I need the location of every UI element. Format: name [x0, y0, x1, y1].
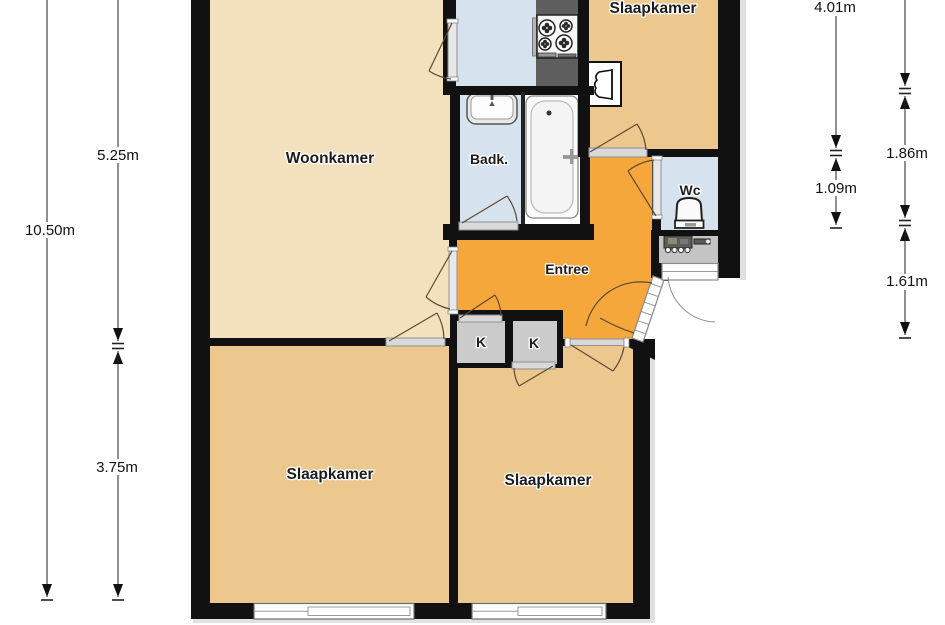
svg-text:4.01m: 4.01m: [814, 0, 856, 16]
svg-text:10.50m: 10.50m: [25, 222, 75, 239]
svg-text:K: K: [529, 335, 539, 351]
svg-text:Slaapkamer: Slaapkamer: [286, 466, 373, 483]
svg-text:Badk.: Badk.: [470, 151, 508, 167]
svg-text:K: K: [476, 334, 486, 350]
svg-text:1.09m: 1.09m: [815, 180, 857, 197]
svg-text:5.25m: 5.25m: [97, 147, 139, 164]
svg-text:3.75m: 3.75m: [96, 459, 138, 476]
svg-text:1.61m: 1.61m: [886, 273, 928, 290]
svg-text:Woonkamer: Woonkamer: [286, 150, 374, 167]
svg-text:1.86m: 1.86m: [886, 145, 928, 162]
svg-text:Wc: Wc: [680, 182, 701, 198]
svg-text:Slaapkamer: Slaapkamer: [609, 0, 696, 17]
svg-text:Slaapkamer: Slaapkamer: [504, 472, 591, 489]
svg-text:Entree: Entree: [545, 261, 589, 277]
